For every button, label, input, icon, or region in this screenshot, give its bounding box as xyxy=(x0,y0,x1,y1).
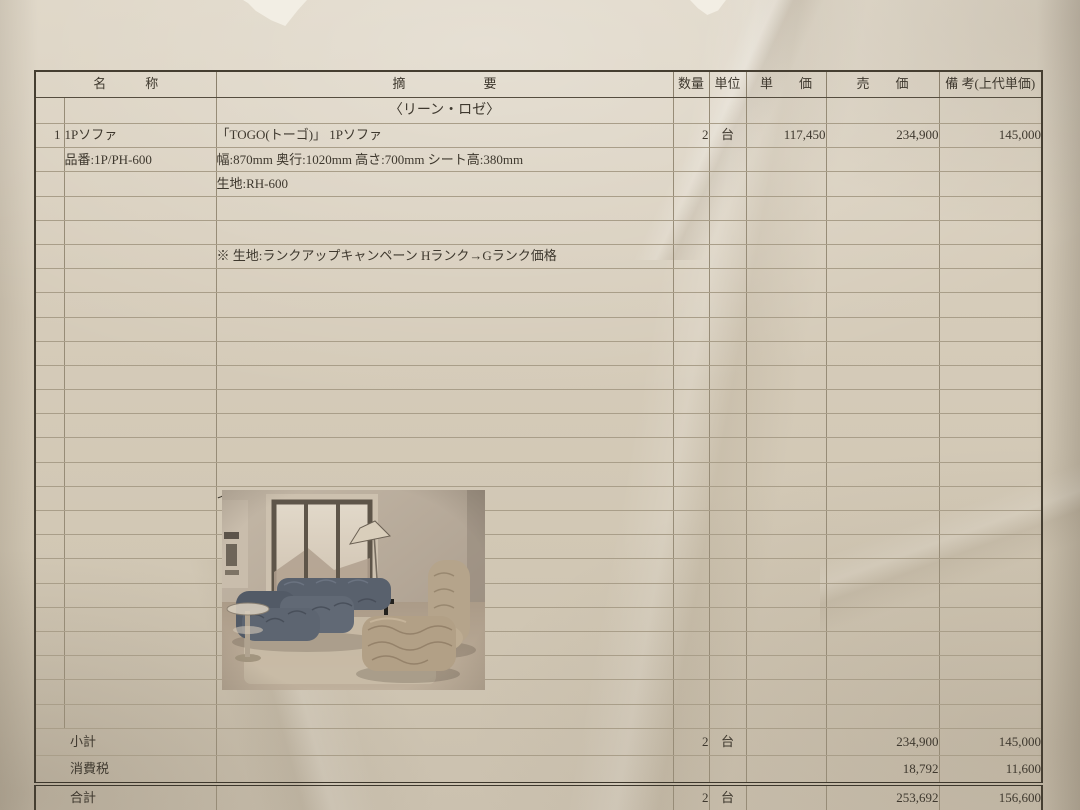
table-cell xyxy=(746,438,826,462)
table-cell xyxy=(746,172,826,196)
subtotal-qty: 2 xyxy=(673,728,709,755)
table-cell xyxy=(939,486,1042,510)
table-cell xyxy=(939,317,1042,341)
brand-row: 〈リーン・ロゼ〉 xyxy=(35,98,1042,124)
item-name: 1Pソファ xyxy=(64,124,216,148)
table-cell xyxy=(673,196,709,220)
table-cell xyxy=(64,680,216,704)
table-cell xyxy=(673,269,709,293)
table-cell xyxy=(939,414,1042,438)
table-cell xyxy=(939,341,1042,365)
table-cell xyxy=(746,196,826,220)
table-cell xyxy=(216,269,673,293)
table-cell xyxy=(35,583,64,607)
table-cell xyxy=(709,511,746,535)
table-cell xyxy=(709,583,746,607)
table-cell xyxy=(746,511,826,535)
table-cell xyxy=(35,656,64,680)
table-cell xyxy=(35,148,64,172)
table-cell xyxy=(216,293,673,317)
table-cell xyxy=(746,244,826,268)
table-cell xyxy=(673,559,709,583)
item-row: 1 1Pソファ 「TOGO(トーゴ)」 1Pソファ 2 台 117,450 23… xyxy=(35,124,1042,148)
table-cell xyxy=(673,656,709,680)
table-cell xyxy=(216,728,673,755)
table-cell xyxy=(673,583,709,607)
table-cell xyxy=(64,341,216,365)
table-cell xyxy=(709,462,746,486)
table-cell xyxy=(746,607,826,631)
table-cell xyxy=(64,390,216,414)
table-cell xyxy=(35,98,64,124)
table-cell xyxy=(35,559,64,583)
item-specs: 幅:870mm 奥行:1020mm 高さ:700mm シート高:380mm xyxy=(216,148,673,172)
photographed-document: 名 称 摘 要 数量 単位 単 価 売 価 備 考(上代単価) 〈リーン・ロゼ〉… xyxy=(0,0,1080,810)
table-cell xyxy=(709,414,746,438)
table-cell xyxy=(64,462,216,486)
subtotal-sell-price: 234,900 xyxy=(826,728,939,755)
table-cell xyxy=(673,755,709,784)
table-cell xyxy=(673,98,709,124)
table-cell xyxy=(826,462,939,486)
table-cell xyxy=(746,414,826,438)
table-cell xyxy=(746,317,826,341)
table-cell xyxy=(746,728,826,755)
table-cell xyxy=(746,98,826,124)
table-cell xyxy=(709,148,746,172)
item-description: 「TOGO(トーゴ)」 1Pソファ xyxy=(216,124,673,148)
table-header-row: 名 称 摘 要 数量 単位 単 価 売 価 備 考(上代単価) xyxy=(35,71,1042,98)
table-cell xyxy=(939,704,1042,728)
table-cell xyxy=(35,680,64,704)
table-cell xyxy=(64,269,216,293)
table-cell xyxy=(216,196,673,220)
table-cell xyxy=(826,390,939,414)
table-cell xyxy=(673,607,709,631)
table-cell xyxy=(746,559,826,583)
quotation-table: 名 称 摘 要 数量 単位 単 価 売 価 備 考(上代単価) 〈リーン・ロゼ〉… xyxy=(34,70,1043,810)
subtotal-unit: 台 xyxy=(709,728,746,755)
item-fabric-row: 生地:RH-600 xyxy=(35,172,1042,196)
table-cell xyxy=(35,293,64,317)
table-cell xyxy=(826,365,939,389)
col-header-unit: 単位 xyxy=(709,71,746,98)
campaign-note-row: ※ 生地:ランクアップキャンペーン Hランク→Gランク価格 xyxy=(35,244,1042,268)
table-cell xyxy=(673,680,709,704)
col-header-unit-price: 単 価 xyxy=(746,71,826,98)
table-cell xyxy=(216,755,673,784)
table-cell xyxy=(826,704,939,728)
table-cell xyxy=(939,607,1042,631)
table-cell xyxy=(709,317,746,341)
table-cell xyxy=(64,172,216,196)
table-cell xyxy=(673,293,709,317)
total-unit: 台 xyxy=(709,784,746,810)
total-sell-price: 253,692 xyxy=(826,784,939,810)
table-cell xyxy=(673,148,709,172)
table-cell xyxy=(709,607,746,631)
table-cell xyxy=(709,341,746,365)
item-unit: 台 xyxy=(709,124,746,148)
table-cell xyxy=(939,244,1042,268)
table-cell xyxy=(826,172,939,196)
total-qty: 2 xyxy=(673,784,709,810)
table-cell xyxy=(64,607,216,631)
table-cell xyxy=(216,341,673,365)
table-cell xyxy=(709,656,746,680)
table-cell xyxy=(826,486,939,510)
table-cell xyxy=(746,680,826,704)
subtotal-row: 小計 2 台 234,900 145,000 xyxy=(35,728,1042,755)
item-qty: 2 xyxy=(673,124,709,148)
table-cell xyxy=(64,414,216,438)
table-cell xyxy=(746,220,826,244)
table-cell xyxy=(64,535,216,559)
table-cell xyxy=(35,365,64,389)
table-cell xyxy=(709,390,746,414)
table-cell xyxy=(35,704,64,728)
table-cell xyxy=(673,462,709,486)
table-cell xyxy=(64,486,216,510)
table-cell xyxy=(826,535,939,559)
table-cell xyxy=(939,172,1042,196)
product-image xyxy=(222,490,485,690)
table-cell xyxy=(709,293,746,317)
table-cell xyxy=(64,438,216,462)
table-cell xyxy=(673,486,709,510)
table-cell xyxy=(939,656,1042,680)
table-cell xyxy=(709,196,746,220)
table-cell xyxy=(35,414,64,438)
table-cell xyxy=(216,220,673,244)
table-cell xyxy=(826,511,939,535)
table-cell xyxy=(35,196,64,220)
table-cell xyxy=(64,365,216,389)
tax-sell-price: 18,792 xyxy=(826,755,939,784)
table-cell xyxy=(939,220,1042,244)
table-cell xyxy=(746,784,826,810)
table-cell xyxy=(673,438,709,462)
table-cell xyxy=(826,293,939,317)
table-cell xyxy=(673,511,709,535)
table-cell xyxy=(35,244,64,268)
item-model-number: 品番:1P/PH-600 xyxy=(64,148,216,172)
table-cell xyxy=(709,755,746,784)
table-cell xyxy=(64,583,216,607)
subtotal-label: 小計 xyxy=(35,728,216,755)
col-header-sell-price: 売 価 xyxy=(826,71,939,98)
table-cell xyxy=(826,220,939,244)
table-cell xyxy=(64,220,216,244)
brand-name: 〈リーン・ロゼ〉 xyxy=(216,98,673,124)
table-cell xyxy=(673,172,709,196)
table-cell xyxy=(939,269,1042,293)
table-cell xyxy=(35,535,64,559)
table-cell xyxy=(673,341,709,365)
table-cell xyxy=(35,172,64,196)
table-cell xyxy=(939,98,1042,124)
table-cell xyxy=(709,244,746,268)
table-cell xyxy=(709,172,746,196)
table-cell xyxy=(826,656,939,680)
campaign-note: ※ 生地:ランクアップキャンペーン Hランク→Gランク価格 xyxy=(216,244,673,268)
table-cell xyxy=(826,583,939,607)
tax-remarks-price: 11,600 xyxy=(939,755,1042,784)
table-cell xyxy=(746,293,826,317)
item-unit-price: 117,450 xyxy=(746,124,826,148)
subtotal-remarks-price: 145,000 xyxy=(939,728,1042,755)
total-label: 合計 xyxy=(35,784,216,810)
table-cell xyxy=(673,414,709,438)
table-cell xyxy=(216,365,673,389)
col-header-name: 名 称 xyxy=(35,71,216,98)
table-cell xyxy=(709,535,746,559)
table-cell xyxy=(673,365,709,389)
tax-row: 消費税 18,792 11,600 xyxy=(35,755,1042,784)
table-cell xyxy=(826,317,939,341)
table-cell xyxy=(746,583,826,607)
table-cell xyxy=(35,486,64,510)
table-cell xyxy=(939,148,1042,172)
table-cell xyxy=(746,486,826,510)
table-cell xyxy=(64,293,216,317)
table-cell xyxy=(216,784,673,810)
col-header-remarks: 備 考(上代単価) xyxy=(939,71,1042,98)
table-cell xyxy=(35,511,64,535)
table-cell xyxy=(939,196,1042,220)
table-cell xyxy=(746,535,826,559)
item-number: 1 xyxy=(35,124,64,148)
table-cell xyxy=(826,196,939,220)
total-remarks-price: 156,600 xyxy=(939,784,1042,810)
table-cell xyxy=(826,98,939,124)
table-cell xyxy=(709,220,746,244)
table-cell xyxy=(826,148,939,172)
table-cell xyxy=(939,390,1042,414)
table-cell xyxy=(939,535,1042,559)
table-cell xyxy=(673,535,709,559)
table-cell xyxy=(709,559,746,583)
col-header-qty: 数量 xyxy=(673,71,709,98)
table-cell xyxy=(64,317,216,341)
table-cell xyxy=(216,317,673,341)
table-cell xyxy=(709,438,746,462)
table-cell xyxy=(709,269,746,293)
table-cell xyxy=(746,755,826,784)
table-cell xyxy=(746,365,826,389)
table-cell xyxy=(709,98,746,124)
table-cell xyxy=(746,390,826,414)
table-cell xyxy=(35,220,64,244)
table-cell xyxy=(64,511,216,535)
table-cell xyxy=(673,220,709,244)
table-cell xyxy=(939,680,1042,704)
image-label-row: イメージ画像 xyxy=(35,486,1042,510)
table-cell xyxy=(939,438,1042,462)
table-cell xyxy=(746,148,826,172)
table-cell xyxy=(826,438,939,462)
table-cell xyxy=(939,293,1042,317)
tax-label: 消費税 xyxy=(35,755,216,784)
table-cell xyxy=(709,365,746,389)
item-model-row: 品番:1P/PH-600 幅:870mm 奥行:1020mm 高さ:700mm … xyxy=(35,148,1042,172)
table-cell xyxy=(64,559,216,583)
table-cell xyxy=(939,511,1042,535)
table-cell xyxy=(939,583,1042,607)
table-cell xyxy=(35,269,64,293)
table-cell xyxy=(216,390,673,414)
table-cell xyxy=(673,317,709,341)
table-cell xyxy=(216,462,673,486)
table-cell xyxy=(35,390,64,414)
table-cell xyxy=(826,607,939,631)
total-row: 合計 2 台 253,692 156,600 xyxy=(35,784,1042,810)
table-cell xyxy=(746,656,826,680)
table-cell xyxy=(826,559,939,583)
table-cell xyxy=(746,269,826,293)
table-cell xyxy=(709,486,746,510)
table-cell xyxy=(939,559,1042,583)
table-cell xyxy=(64,196,216,220)
item-remarks-price: 145,000 xyxy=(939,124,1042,148)
table-cell xyxy=(216,414,673,438)
table-cell xyxy=(35,462,64,486)
table-cell xyxy=(826,244,939,268)
table-cell xyxy=(746,341,826,365)
table-cell xyxy=(64,244,216,268)
table-cell xyxy=(216,704,673,728)
table-cell xyxy=(673,244,709,268)
table-cell xyxy=(35,607,64,631)
col-header-desc: 摘 要 xyxy=(216,71,673,98)
table-cell xyxy=(826,269,939,293)
table-cell xyxy=(826,631,939,655)
table-cell xyxy=(35,317,64,341)
table-cell xyxy=(826,341,939,365)
table-cell xyxy=(673,704,709,728)
item-fabric: 生地:RH-600 xyxy=(216,172,673,196)
table-cell xyxy=(64,704,216,728)
table-cell xyxy=(826,680,939,704)
table-cell xyxy=(216,438,673,462)
table-cell xyxy=(709,631,746,655)
table-cell xyxy=(746,631,826,655)
table-cell xyxy=(826,414,939,438)
table-cell xyxy=(939,365,1042,389)
table-cell xyxy=(35,438,64,462)
table-cell xyxy=(939,631,1042,655)
table-cell xyxy=(709,680,746,704)
table-cell xyxy=(673,390,709,414)
table-cell xyxy=(939,462,1042,486)
item-sell-price: 234,900 xyxy=(826,124,939,148)
table-cell xyxy=(709,704,746,728)
table-cell xyxy=(64,98,216,124)
table-cell xyxy=(746,462,826,486)
table-cell xyxy=(746,704,826,728)
table-cell xyxy=(35,631,64,655)
table-cell xyxy=(673,631,709,655)
table-cell xyxy=(64,631,216,655)
table-cell xyxy=(35,341,64,365)
table-cell xyxy=(64,656,216,680)
